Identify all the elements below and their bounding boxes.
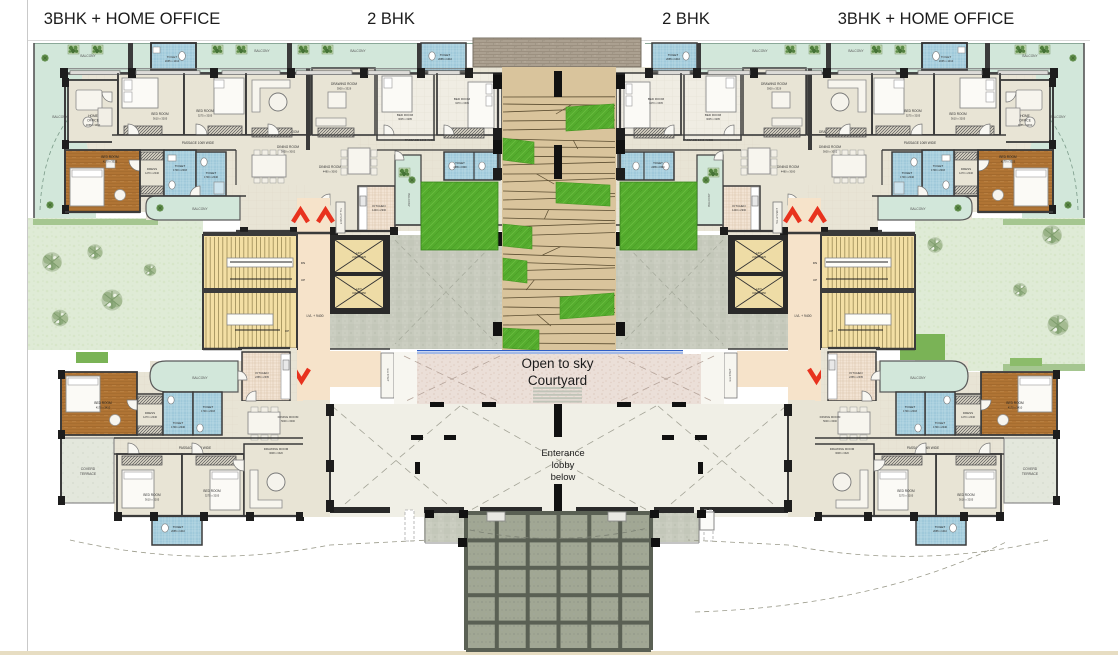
svg-text:DRESS: DRESS (961, 167, 971, 171)
svg-text:DN: DN (813, 261, 817, 265)
svg-text:TERRACE: TERRACE (80, 472, 97, 476)
svg-text:BED ROOM: BED ROOM (1006, 401, 1024, 405)
svg-text:3610 x 3205: 3610 x 3205 (153, 117, 168, 121)
svg-text:BED ROOM: BED ROOM (143, 493, 161, 497)
svg-text:COVERD: COVERD (81, 467, 96, 471)
svg-text:BED ROOM: BED ROOM (454, 97, 471, 101)
svg-text:BALCONY: BALCONY (350, 49, 366, 53)
svg-text:BALCONY: BALCONY (407, 193, 411, 207)
svg-text:3600 x 3002: 3600 x 3002 (281, 150, 296, 154)
svg-text:DRESS: DRESS (147, 167, 157, 171)
svg-text:2065 x 1010: 2065 x 1010 (171, 530, 185, 533)
svg-text:TOILET: TOILET (905, 405, 916, 409)
svg-text:1900 X 1950: 1900 X 1950 (352, 292, 366, 295)
svg-text:BALCONY: BALCONY (848, 49, 864, 53)
svg-text:2065 x 1010: 2065 x 1010 (933, 530, 947, 533)
svg-text:BED ROOM: BED ROOM (904, 109, 922, 113)
svg-text:BALCONY: BALCONY (910, 207, 926, 211)
svg-text:3610 x 3205: 3610 x 3205 (951, 117, 966, 121)
svg-text:2065 x 1010: 2065 x 1010 (666, 58, 680, 61)
svg-text:TOILET: TOILET (653, 161, 663, 165)
svg-text:PASSAGE 1069 WIDE: PASSAGE 1069 WIDE (904, 141, 936, 145)
svg-text:DINING ROOM: DINING ROOM (319, 165, 341, 169)
svg-text:3BHK + HOME OFFICE: 3BHK + HOME OFFICE (44, 10, 221, 28)
svg-text:1270 x 2046: 1270 x 2046 (959, 172, 973, 175)
svg-text:BALCONY: BALCONY (1022, 54, 1038, 58)
svg-text:below: below (551, 472, 576, 483)
svg-text:3608 x 3320: 3608 x 3320 (269, 452, 283, 455)
svg-text:PASSAGE 1069 WIDE: PASSAGE 1069 WIDE (182, 141, 214, 145)
svg-text:1700 x 2046: 1700 x 2046 (900, 176, 914, 179)
svg-text:TOILET: TOILET (933, 164, 944, 168)
svg-text:1270 x 2046: 1270 x 2046 (143, 416, 157, 419)
svg-text:TOILET: TOILET (173, 421, 184, 425)
svg-text:2065 x 1010: 2065 x 1010 (165, 59, 180, 63)
svg-text:BED ROOM: BED ROOM (94, 401, 112, 405)
svg-text:2065 x 1010: 2065 x 1010 (438, 58, 452, 61)
svg-text:3610 x 3205: 3610 x 3205 (959, 498, 974, 502)
svg-text:DINING ROOM: DINING ROOM (277, 145, 299, 149)
svg-text:1700 x 2046: 1700 x 2046 (933, 426, 947, 429)
svg-text:LIFT: LIFT (756, 251, 762, 255)
svg-text:4480 x 3000: 4480 x 3000 (781, 170, 796, 174)
svg-text:LIFT: LIFT (356, 251, 362, 255)
svg-text:1900 X 1950: 1900 X 1950 (752, 292, 766, 295)
svg-text:ELE SHAFT: ELE SHAFT (386, 368, 389, 382)
svg-text:TOILET: TOILET (902, 171, 913, 175)
svg-text:HOME: HOME (88, 114, 98, 118)
svg-text:PASSAGE 1069 WIDE: PASSAGE 1069 WIDE (683, 138, 713, 142)
svg-text:BED ROOM: BED ROOM (203, 489, 221, 493)
svg-text:TOILET: TOILET (167, 55, 178, 59)
svg-text:BALCONY: BALCONY (80, 54, 96, 58)
svg-text:3610 x 3205: 3610 x 3205 (145, 498, 160, 502)
svg-text:UP: UP (813, 278, 817, 282)
svg-text:BALCONY: BALCONY (910, 376, 926, 380)
svg-text:3055 x 3460: 3055 x 3460 (86, 123, 101, 127)
svg-text:BALCONY: BALCONY (192, 376, 208, 380)
svg-text:3275 x 3205: 3275 x 3205 (906, 114, 921, 118)
svg-text:TOILET: TOILET (206, 171, 217, 175)
svg-text:3470 x 3305: 3470 x 3305 (455, 102, 469, 105)
svg-text:2365 x 2635: 2365 x 2635 (849, 376, 863, 379)
svg-text:BED ROOM: BED ROOM (949, 112, 967, 116)
svg-text:HOME: HOME (1020, 114, 1030, 118)
svg-text:BED ROOM: BED ROOM (397, 113, 414, 117)
svg-text:DRAWING ROOM: DRAWING ROOM (264, 447, 289, 451)
svg-text:BED ROOM: BED ROOM (648, 97, 665, 101)
svg-text:3275 x 3205: 3275 x 3205 (198, 114, 213, 118)
svg-text:OFFICE: OFFICE (1019, 119, 1031, 123)
svg-text:DRAWING ROOM: DRAWING ROOM (761, 82, 787, 86)
svg-text:1700 x 2046: 1700 x 2046 (171, 426, 185, 429)
svg-text:UP: UP (301, 278, 305, 282)
svg-text:DRESS: DRESS (145, 411, 155, 415)
svg-text:3005 x 3295: 3005 x 3295 (398, 118, 412, 121)
svg-text:2 BHK: 2 BHK (662, 10, 710, 28)
svg-text:BED ROOM: BED ROOM (999, 155, 1017, 159)
svg-text:BED ROOM: BED ROOM (196, 109, 214, 113)
svg-text:BED ROOM: BED ROOM (151, 112, 169, 116)
svg-text:3275 x 3205: 3275 x 3205 (899, 494, 914, 498)
svg-text:1403 x 2936: 1403 x 2936 (372, 209, 386, 212)
svg-text:DINING ROOM: DINING ROOM (278, 415, 299, 419)
svg-text:LIFT: LIFT (356, 287, 362, 291)
svg-text:DRAWING ROOM: DRAWING ROOM (830, 447, 855, 451)
svg-text:DINING ROOM: DINING ROOM (777, 165, 799, 169)
svg-text:1700 x 2003: 1700 x 2003 (931, 169, 945, 172)
svg-text:BALCONY: BALCONY (192, 207, 208, 211)
svg-text:BALCONY: BALCONY (52, 115, 68, 119)
svg-text:1270 x 2046: 1270 x 2046 (961, 416, 975, 419)
svg-text:BALCONY: BALCONY (707, 193, 711, 207)
svg-text:3900 x 3329: 3900 x 3329 (767, 87, 782, 91)
svg-text:4170 x 3410: 4170 x 3410 (96, 406, 111, 410)
svg-text:4170 x 3525: 4170 x 3525 (1001, 160, 1016, 164)
svg-text:TOILET: TOILET (175, 164, 186, 168)
svg-text:Enterance: Enterance (541, 448, 584, 459)
svg-text:5000 x 3000: 5000 x 3000 (281, 420, 295, 423)
svg-text:DINING ROOM: DINING ROOM (819, 145, 841, 149)
svg-text:2100 X 1925: 2100 X 1925 (752, 256, 766, 259)
svg-text:BALCONY: BALCONY (254, 49, 270, 53)
svg-text:2065 x 1010: 2065 x 1010 (939, 59, 954, 63)
svg-text:1270 x 2046: 1270 x 2046 (145, 172, 159, 175)
svg-text:5000 x 3000: 5000 x 3000 (823, 420, 837, 423)
svg-text:LVL + 9400: LVL + 9400 (306, 314, 323, 318)
svg-text:TOILET: TOILET (935, 421, 946, 425)
svg-text:DRAWING ROOM: DRAWING ROOM (331, 82, 357, 86)
svg-text:1700 x 2003: 1700 x 2003 (903, 410, 917, 413)
svg-text:4480 x 3000: 4480 x 3000 (323, 170, 338, 174)
svg-text:1700 x 2003: 1700 x 2003 (173, 169, 187, 172)
svg-text:lobby: lobby (552, 460, 575, 471)
svg-text:TOILET: TOILET (440, 53, 451, 57)
svg-text:DRESS: DRESS (963, 411, 973, 415)
svg-text:1700 x 2003: 1700 x 2003 (201, 410, 215, 413)
svg-text:TOILET: TOILET (941, 55, 952, 59)
svg-text:BED ROOM: BED ROOM (101, 155, 119, 159)
svg-text:UP: UP (829, 329, 833, 333)
svg-text:KITCHEN: KITCHEN (732, 204, 745, 208)
svg-text:DN: DN (301, 261, 305, 265)
svg-text:3055 x 3460: 3055 x 3460 (1018, 123, 1033, 127)
svg-text:BED ROOM: BED ROOM (705, 113, 722, 117)
svg-text:LIFT: LIFT (756, 287, 762, 291)
svg-text:KITCHEN: KITCHEN (372, 204, 385, 208)
svg-text:H.G.LV SHAFT: H.G.LV SHAFT (339, 208, 342, 225)
svg-text:BED ROOM: BED ROOM (957, 493, 975, 497)
svg-text:UP: UP (285, 329, 289, 333)
svg-text:TOILET: TOILET (935, 525, 946, 529)
svg-text:1700 x 2046: 1700 x 2046 (204, 176, 218, 179)
svg-text:3900 x 3329: 3900 x 3329 (337, 87, 352, 91)
svg-text:4170 x 3525: 4170 x 3525 (103, 160, 118, 164)
svg-text:TOILET: TOILET (203, 405, 214, 409)
svg-text:TOILET: TOILET (668, 53, 679, 57)
svg-text:LVL + 9400: LVL + 9400 (794, 314, 811, 318)
svg-text:KITCHEN: KITCHEN (849, 371, 862, 375)
svg-text:2465 x 1500: 2465 x 1500 (453, 166, 467, 169)
svg-text:2 BHK: 2 BHK (367, 10, 415, 28)
svg-text:2100 X 1925: 2100 X 1925 (352, 256, 366, 259)
svg-text:Open to sky: Open to sky (521, 356, 593, 371)
svg-text:BALCONY: BALCONY (752, 49, 768, 53)
svg-text:3608 x 3320: 3608 x 3320 (835, 452, 849, 455)
svg-text:COVERD: COVERD (1023, 467, 1038, 471)
svg-text:TOILET: TOILET (173, 525, 184, 529)
svg-text:3005 x 3295: 3005 x 3295 (706, 118, 720, 121)
svg-text:OFFICE: OFFICE (87, 119, 99, 123)
svg-text:2365 x 2635: 2365 x 2635 (255, 376, 269, 379)
svg-text:H.G.LV SHAFT: H.G.LV SHAFT (776, 207, 779, 224)
svg-text:PASSAGE 1069 WIDE: PASSAGE 1069 WIDE (405, 138, 435, 142)
svg-text:TERRACE: TERRACE (1022, 472, 1039, 476)
svg-text:1403 x 2936: 1403 x 2936 (732, 209, 746, 212)
svg-text:3600 x 3002: 3600 x 3002 (823, 150, 838, 154)
svg-text:3275 x 3205: 3275 x 3205 (205, 494, 220, 498)
svg-text:2465 x 1500: 2465 x 1500 (651, 166, 665, 169)
svg-text:4170 x 3410: 4170 x 3410 (1008, 406, 1023, 410)
svg-text:ELE SHAFT: ELE SHAFT (729, 368, 732, 382)
svg-text:KITCHEN: KITCHEN (255, 371, 268, 375)
svg-text:BED ROOM: BED ROOM (897, 489, 915, 493)
svg-text:Courtyard: Courtyard (528, 373, 587, 388)
svg-text:3BHK + HOME OFFICE: 3BHK + HOME OFFICE (838, 10, 1015, 28)
svg-text:TOILET: TOILET (455, 161, 465, 165)
svg-text:DINING ROOM: DINING ROOM (820, 415, 841, 419)
svg-text:3470 x 3305: 3470 x 3305 (649, 102, 663, 105)
